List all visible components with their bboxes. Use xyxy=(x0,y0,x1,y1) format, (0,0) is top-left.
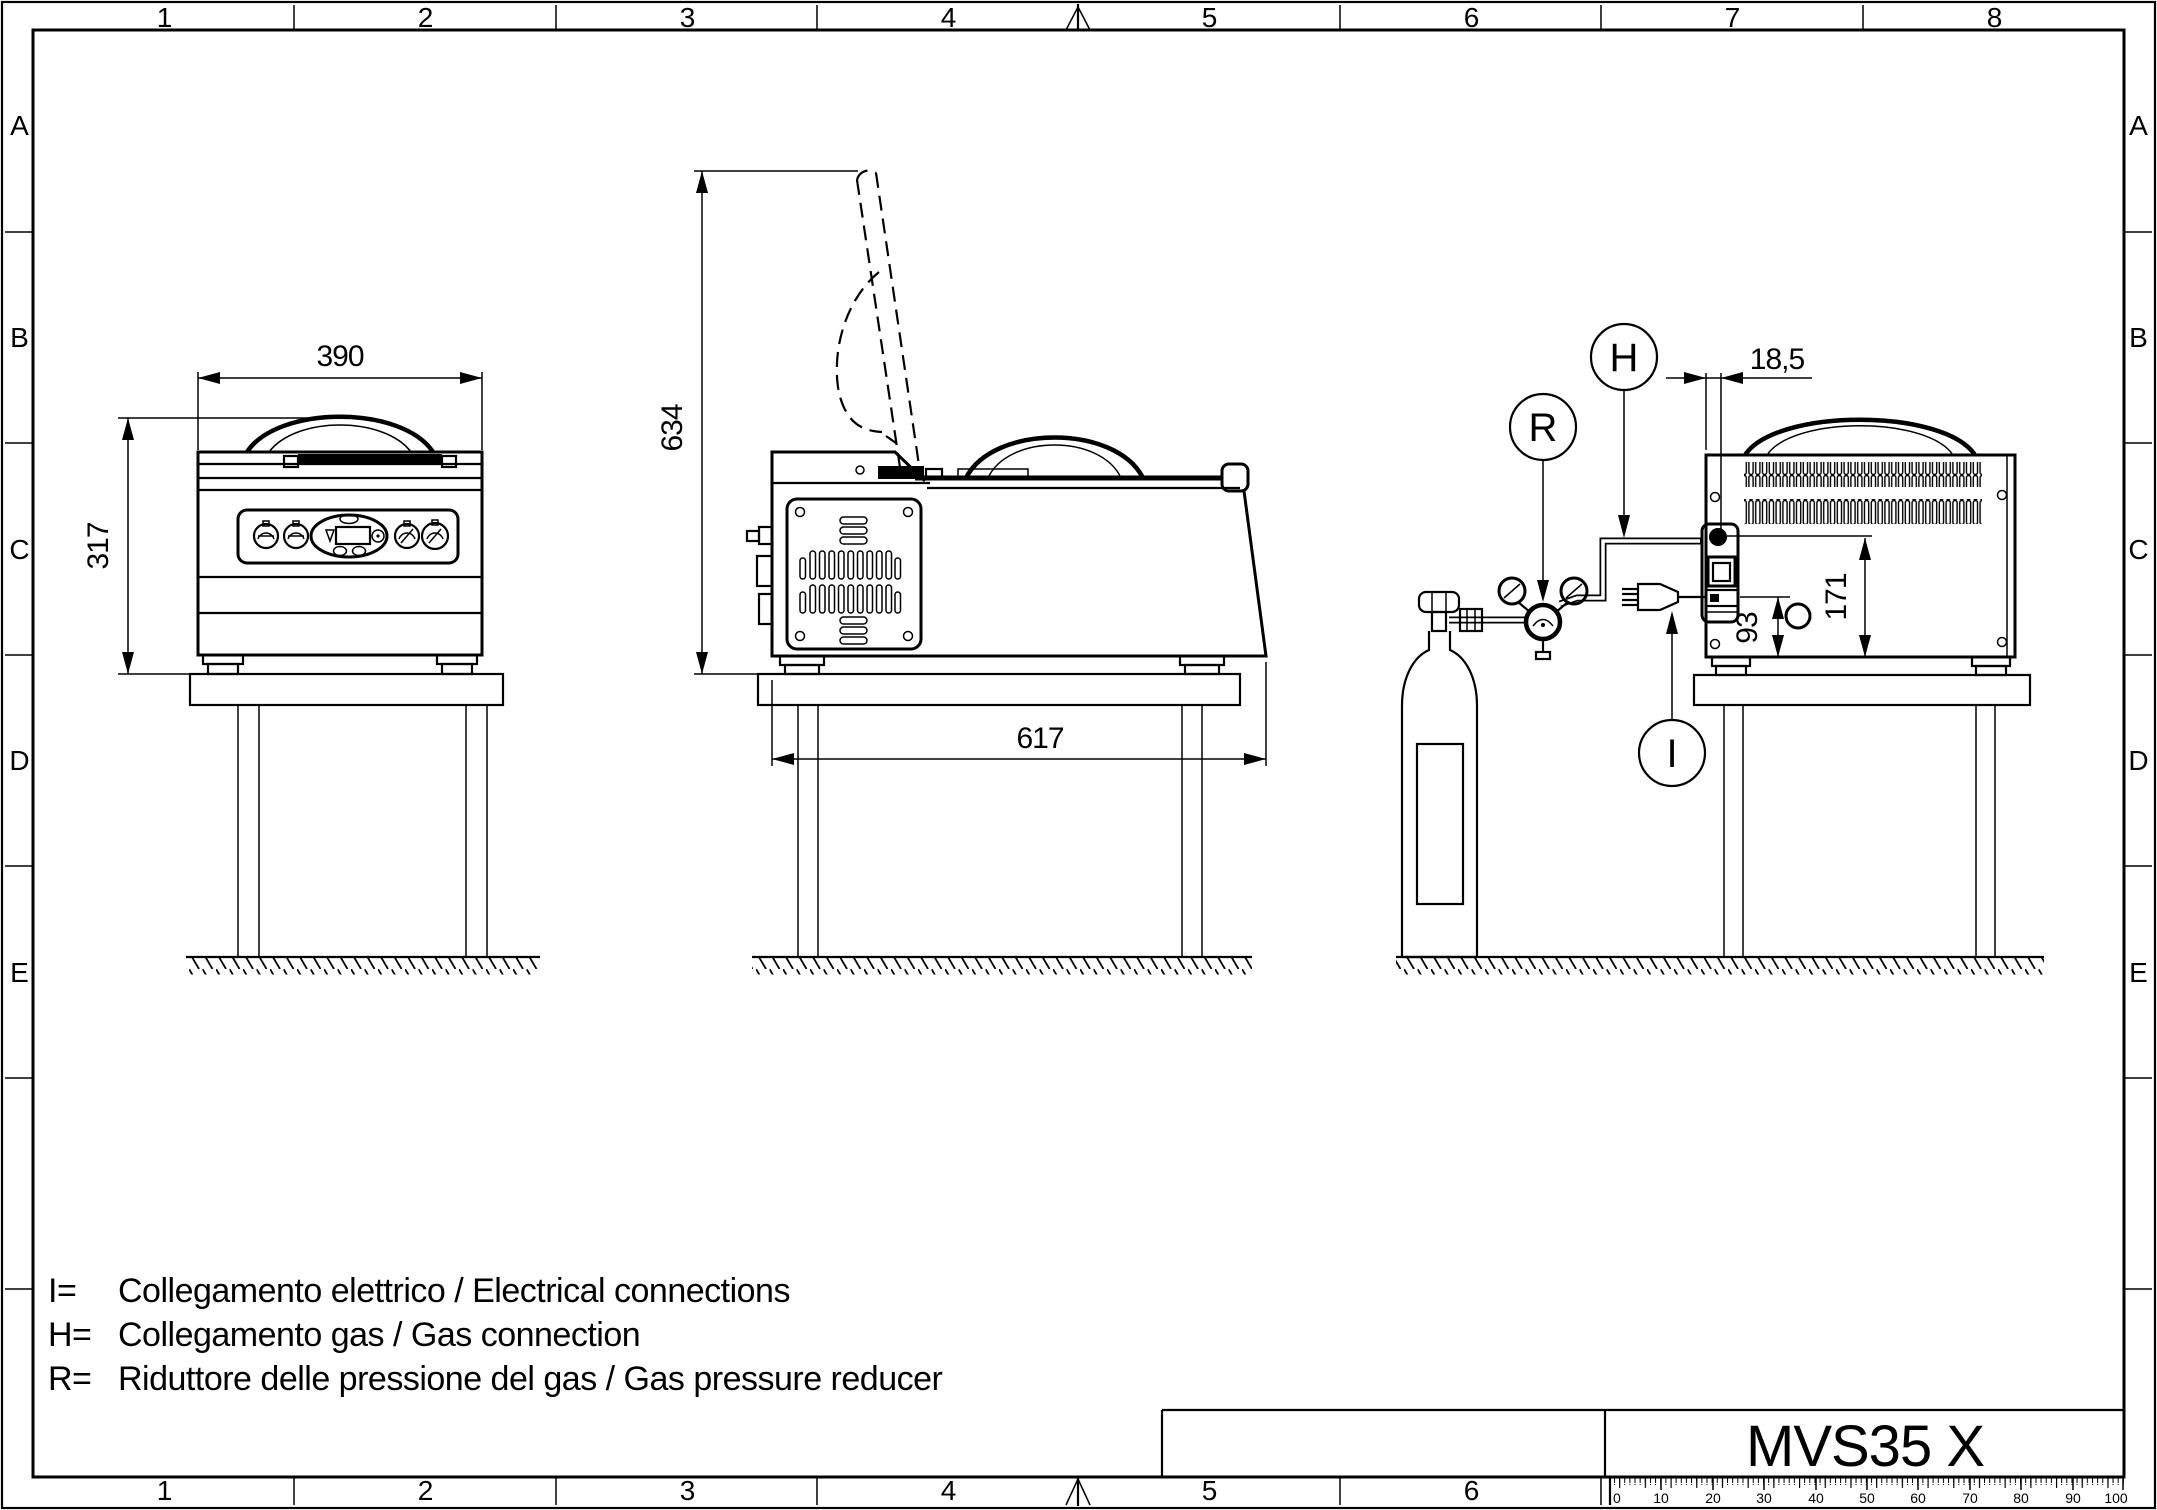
balloon-reducer-label: R xyxy=(1529,406,1558,450)
ruler-label: 30 xyxy=(1756,1490,1772,1506)
zone-col-label: 6 xyxy=(1464,1475,1479,1506)
panel-button-icon xyxy=(395,521,419,548)
legend-prefix: I= xyxy=(48,1272,76,1310)
control-panel xyxy=(238,510,458,563)
front-view: 390 317 xyxy=(82,340,540,975)
side-vent-panel xyxy=(787,499,921,649)
ruler-label: 80 xyxy=(2013,1490,2029,1506)
dim-gas-offset-label: 18,5 xyxy=(1750,343,1805,376)
ruler-label: 50 xyxy=(1859,1490,1875,1506)
legend: I= Collegamento elettrico / Electrical c… xyxy=(48,1272,943,1398)
zone-col-label: 1 xyxy=(157,2,172,33)
rear-port-icon xyxy=(1786,604,1810,628)
ground-hatch xyxy=(752,958,1252,975)
rear-view: R H I 18,5 171 93 xyxy=(1396,324,2044,975)
balloon-electric-label: I xyxy=(1666,732,1677,776)
zone-col-label: 8 xyxy=(1987,2,2002,33)
dim-plug-height-label: 93 xyxy=(1731,612,1764,644)
open-lid-outline xyxy=(837,171,921,479)
side-table xyxy=(752,674,1252,975)
gauge-icon xyxy=(1499,578,1530,612)
zone-row-label: E xyxy=(10,957,28,988)
zone-row-label: C xyxy=(2128,534,2148,565)
zone-row-label: D xyxy=(9,745,28,776)
ground-hatch xyxy=(1396,958,2044,975)
gas-bottle xyxy=(1402,592,1477,957)
zone-row-label: E xyxy=(2129,957,2147,988)
ruler-label: 10 xyxy=(1653,1490,1669,1506)
zone-row-label: A xyxy=(2129,110,2148,141)
panel-display xyxy=(336,527,370,544)
drawing-sheet: 1 2 3 4 5 6 7 8 1 2 3 4 5 6 A B C D E A … xyxy=(0,0,2157,1510)
zone-row-label: A xyxy=(10,110,29,141)
vent-band xyxy=(1744,499,1982,524)
rear-table xyxy=(1396,675,2044,975)
ruler-label: 100 xyxy=(2104,1490,2128,1506)
title-block: MVS35 X xyxy=(1162,1410,2124,1479)
technical-drawing-svg: 1 2 3 4 5 6 7 8 1 2 3 4 5 6 A B C D E A … xyxy=(0,0,2157,1510)
panel-button-icon xyxy=(284,521,308,548)
zone-col-label: 3 xyxy=(680,1475,695,1506)
zone-col-label: 4 xyxy=(941,1475,956,1506)
zone-col-label: 7 xyxy=(1725,2,1740,33)
machine-foot xyxy=(203,655,477,674)
zone-col-label: 4 xyxy=(941,2,956,33)
dim-open-lid-height-label: 634 xyxy=(656,404,689,451)
front-table xyxy=(186,674,540,975)
legend-prefix: H= xyxy=(48,1316,91,1354)
zone-row-label: B xyxy=(2129,322,2147,353)
panel-button-icon xyxy=(422,520,448,549)
side-zone-dividers xyxy=(5,232,2152,1289)
ruler-label: 0 xyxy=(1613,1490,1621,1506)
zone-row-label: C xyxy=(9,534,29,565)
side-machine xyxy=(747,438,1266,675)
gas-inlet-icon xyxy=(1709,528,1727,546)
ruler-label: 60 xyxy=(1910,1490,1926,1506)
zone-col-label: 5 xyxy=(1202,1475,1217,1506)
panel-display-cluster xyxy=(311,515,387,558)
ruler-label: 70 xyxy=(1962,1490,1978,1506)
legend-prefix: R= xyxy=(48,1360,91,1398)
model-number: MVS35 X xyxy=(1746,1414,1984,1479)
bottle-label xyxy=(1417,744,1463,904)
dim-plug-height: 93 xyxy=(1731,597,1790,657)
dim-front-width: 390 xyxy=(198,340,482,450)
bottle-valve-handle xyxy=(1419,592,1459,612)
dim-open-lid-height: 634 xyxy=(656,171,858,674)
legend-text: Collegamento gas / Gas connection xyxy=(118,1316,640,1354)
balloon-gas-label: H xyxy=(1610,336,1639,380)
balloon-reducer: R xyxy=(1510,394,1576,602)
ruler-label: 90 xyxy=(2065,1490,2081,1506)
zone-col-label: 2 xyxy=(418,2,433,33)
ground-hatch xyxy=(186,958,540,975)
power-plug-icon xyxy=(1622,584,1706,610)
zone-col-label: 1 xyxy=(157,1475,172,1506)
pressure-reducer xyxy=(1449,541,1702,659)
dim-front-width-label: 390 xyxy=(316,340,363,373)
center-mark-icon xyxy=(1066,4,1090,1506)
zone-col-label: 6 xyxy=(1464,2,1479,33)
front-machine xyxy=(198,417,482,674)
side-fittings xyxy=(747,527,772,624)
zone-col-label: 3 xyxy=(680,2,695,33)
zone-col-label: 2 xyxy=(418,1475,433,1506)
dim-depth-label: 617 xyxy=(1016,722,1063,755)
legend-text: Collegamento elettrico / Electrical conn… xyxy=(118,1272,790,1310)
scale-ruler: 0 10 20 30 40 50 60 70 80 90 100 xyxy=(1610,1477,2128,1506)
dim-depth: 617 xyxy=(772,662,1266,766)
dim-front-height-label: 317 xyxy=(82,522,115,569)
zone-row-label: B xyxy=(10,322,28,353)
side-view: 634 xyxy=(656,171,1266,975)
machine-foot xyxy=(1712,657,2010,675)
vent-band xyxy=(1744,462,1982,487)
panel-button-icon xyxy=(254,521,278,548)
zone-col-label: 5 xyxy=(1202,2,1217,33)
legend-text: Riduttore delle pressione del gas / Gas … xyxy=(118,1360,943,1398)
balloon-gas: H xyxy=(1591,324,1657,538)
ruler-label: 40 xyxy=(1808,1490,1824,1506)
dim-gas-height-label: 171 xyxy=(1820,573,1853,620)
machine-foot xyxy=(780,656,1224,674)
ruler-label: 20 xyxy=(1705,1490,1721,1506)
vent-slots xyxy=(800,551,901,613)
zone-row-label: D xyxy=(2128,745,2147,776)
